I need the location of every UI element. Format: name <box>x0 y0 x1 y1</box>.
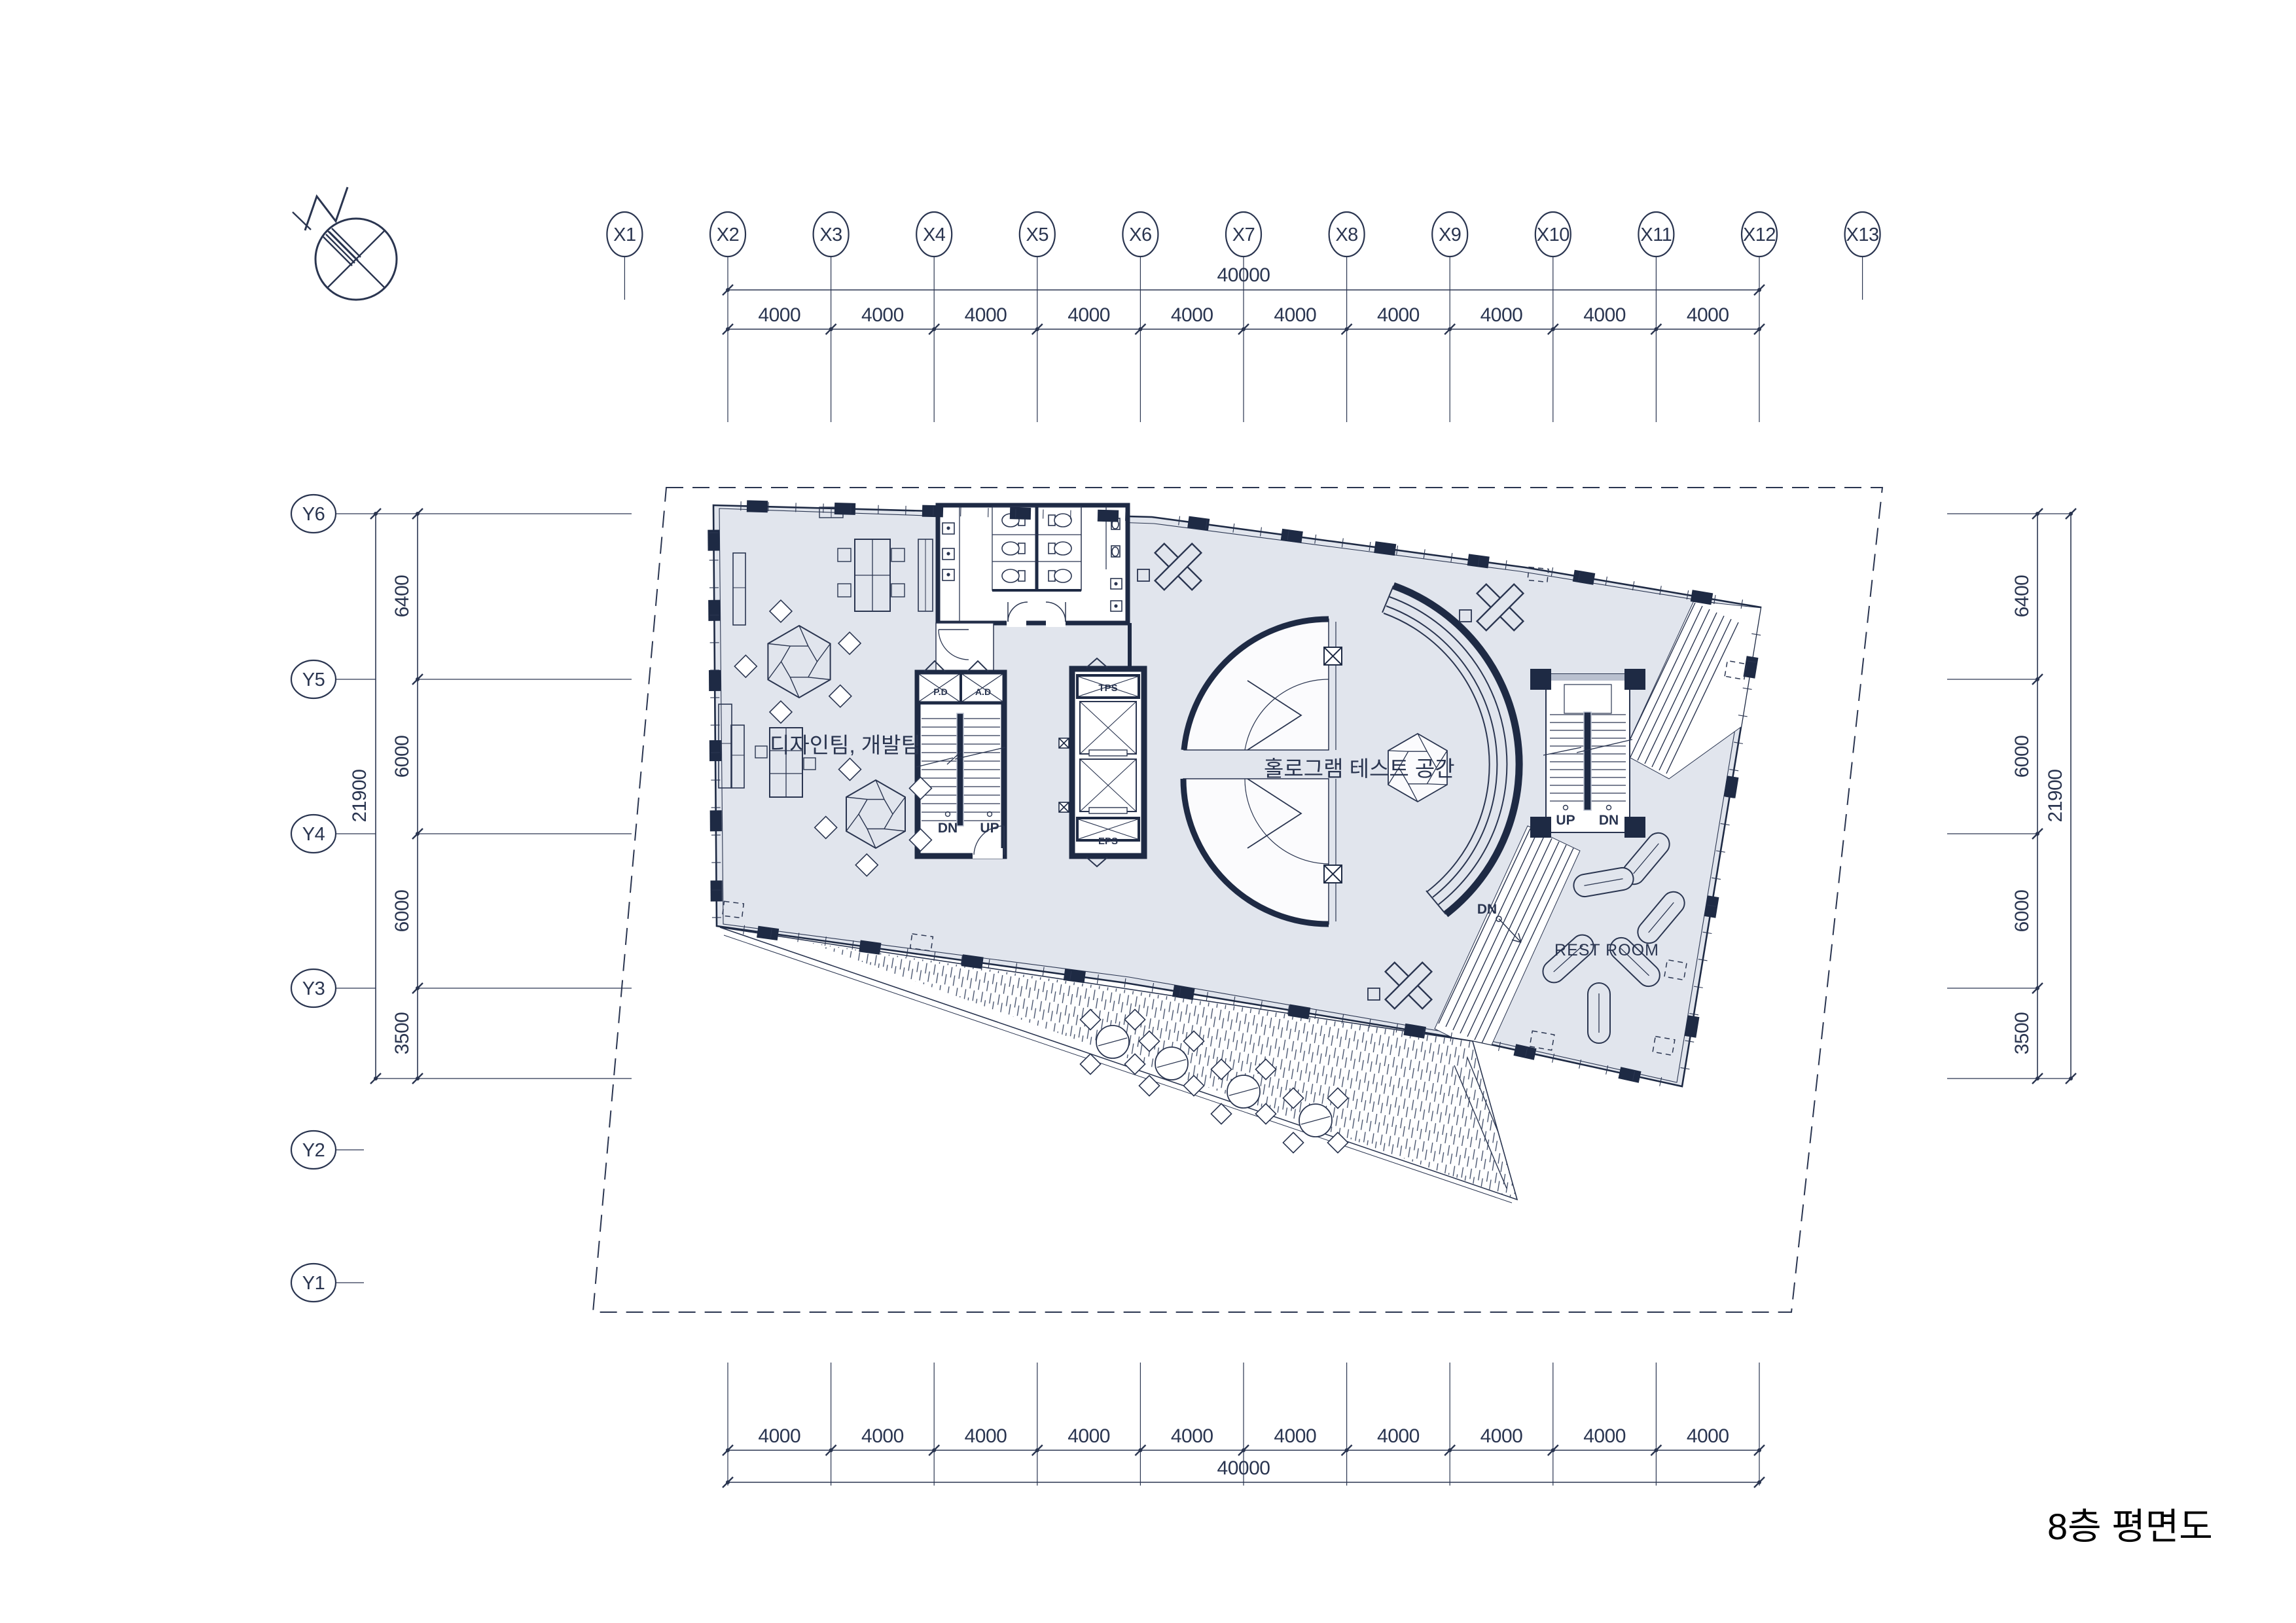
dim-label: 4000 <box>1171 304 1213 326</box>
grid-label: X6 <box>1129 224 1151 245</box>
grid-bubble-y3: Y3 <box>291 969 376 1007</box>
toilet-block <box>938 505 1128 627</box>
grid-label: Y4 <box>302 824 325 845</box>
lounge-pill <box>1588 983 1610 1043</box>
grid-label: X1 <box>613 224 636 245</box>
dim-label: 3500 <box>2011 1012 2033 1055</box>
structural-column <box>834 503 855 515</box>
grid-bubble-y5: Y5 <box>291 660 376 698</box>
drawing-sheet: { "title": "8층 평면도", "grid": { "x": ["X1… <box>0 0 2296 1623</box>
grid-bubble-x3: X3 <box>814 212 849 422</box>
dim-label: 4000 <box>1067 1425 1110 1447</box>
grid-label: Y5 <box>302 669 325 690</box>
stair-center-rail <box>957 713 963 826</box>
grid-label: X3 <box>819 224 842 245</box>
grid-label: X4 <box>923 224 946 245</box>
shaft-label-eps: EPS <box>1098 836 1118 847</box>
grid-bubble-y2: Y2 <box>291 1131 364 1169</box>
grid-bubble-x9: X9 <box>1432 212 1467 422</box>
dim-label: 6400 <box>2011 575 2033 618</box>
dim-label: 4000 <box>861 1425 904 1447</box>
dim-label: 4000 <box>1583 304 1626 326</box>
dim-label: 4000 <box>758 304 800 326</box>
grid-bubble-x2: X2 <box>710 212 745 422</box>
dim-label: 4000 <box>1687 304 1729 326</box>
grid-bubble-x7: X7 <box>1226 212 1261 422</box>
dim-label: 4000 <box>758 1425 800 1447</box>
dim-label: 40000 <box>1217 264 1270 286</box>
stair-east-dn-label: DN <box>1599 813 1619 828</box>
structural-column <box>710 810 722 831</box>
grid-bubble-x8: X8 <box>1329 212 1365 422</box>
dim-label: 4000 <box>1583 1425 1626 1447</box>
structural-column <box>1098 510 1119 522</box>
north-n-glyph <box>305 187 348 230</box>
shaft-label-ad: A.D <box>975 687 991 697</box>
grid-label: X11 <box>1640 224 1672 245</box>
grid-label: X13 <box>1846 224 1879 245</box>
dim-label: 40000 <box>1217 1457 1270 1479</box>
shaft-label-tps: TPS <box>1098 683 1117 694</box>
grid-label: X12 <box>1743 224 1776 245</box>
grid-bubble-x11: X11 <box>1638 212 1674 422</box>
grid-label: X7 <box>1232 224 1255 245</box>
grid-bubble-x1: X1 <box>607 212 642 300</box>
structural-column <box>1010 507 1031 520</box>
structural-column <box>922 505 943 518</box>
grid-label: X10 <box>1537 224 1570 245</box>
grid-bubble-x4: X4 <box>916 212 952 422</box>
dim-label: 4000 <box>1171 1425 1213 1447</box>
structural-column <box>709 740 721 761</box>
grid-label: Y1 <box>302 1273 325 1294</box>
grid-label: Y2 <box>302 1140 325 1161</box>
dim-label: 6000 <box>2011 736 2033 778</box>
sheet-title: 8층 평면도 <box>2047 1506 2213 1547</box>
room-label-office: 디자인팀, 개발팀 <box>770 733 921 757</box>
dim-label: 21900 <box>349 770 370 823</box>
sink-fixtures-left <box>942 523 954 580</box>
dim-label: 4000 <box>965 304 1007 326</box>
structural-column <box>710 880 722 901</box>
dim-label: 4000 <box>1687 1425 1729 1447</box>
dim-label: 4000 <box>1480 304 1523 326</box>
grid-bubble-y1: Y1 <box>291 1264 364 1302</box>
east-stair <box>1530 669 1645 838</box>
structural-column <box>709 670 721 691</box>
dim-label: 6000 <box>391 890 413 933</box>
ramp-dn-label: DN <box>1477 902 1497 917</box>
dim-label: 4000 <box>1377 304 1420 326</box>
grid-bubble-x13: X13 <box>1845 212 1880 300</box>
room-label-hologram: 홀로그램 테스트 공간 <box>1264 757 1455 781</box>
dim-label: 4000 <box>1274 1425 1316 1447</box>
structural-column <box>747 500 768 512</box>
dim-label: 4000 <box>1067 304 1110 326</box>
grid-bubble-x5: X5 <box>1020 212 1055 422</box>
shaft-label-pd: P.D <box>933 687 948 697</box>
grid-label: X9 <box>1439 224 1461 245</box>
stair-main-dn-label: DN <box>938 821 958 836</box>
grid-bubble-x10: X10 <box>1535 212 1571 422</box>
grid-label: X5 <box>1026 224 1049 245</box>
grid-label: Y6 <box>302 504 325 525</box>
grid-label: X2 <box>717 224 739 245</box>
dim-label: 6000 <box>2011 890 2033 933</box>
structural-column <box>708 600 720 621</box>
dim-label: 4000 <box>1274 304 1316 326</box>
grid-bubble-x6: X6 <box>1122 212 1158 422</box>
dim-label: 21900 <box>2045 770 2066 823</box>
stair-east-up-label: UP <box>1556 813 1575 828</box>
dim-label: 3500 <box>391 1012 413 1055</box>
dim-label: 6400 <box>391 575 413 618</box>
room-label-restroom: REST ROOM <box>1554 941 1659 959</box>
grid-bubble-y6: Y6 <box>291 495 376 533</box>
grid-label: X8 <box>1335 224 1357 245</box>
stair-main-up-label: UP <box>980 821 999 836</box>
grid-bubble-x12: X12 <box>1742 212 1777 422</box>
dim-label: 4000 <box>1377 1425 1420 1447</box>
dim-label: 4000 <box>1480 1425 1523 1447</box>
dim-label: 4000 <box>861 304 904 326</box>
dim-label: 4000 <box>965 1425 1007 1447</box>
grid-label: Y3 <box>302 978 325 999</box>
dim-label: 6000 <box>391 736 413 778</box>
north-arrow-icon <box>293 187 397 300</box>
floor-plan-canvas: X1X2X3X4X5X6X7X8X9X10X11X12X134000040004… <box>0 0 2296 1623</box>
